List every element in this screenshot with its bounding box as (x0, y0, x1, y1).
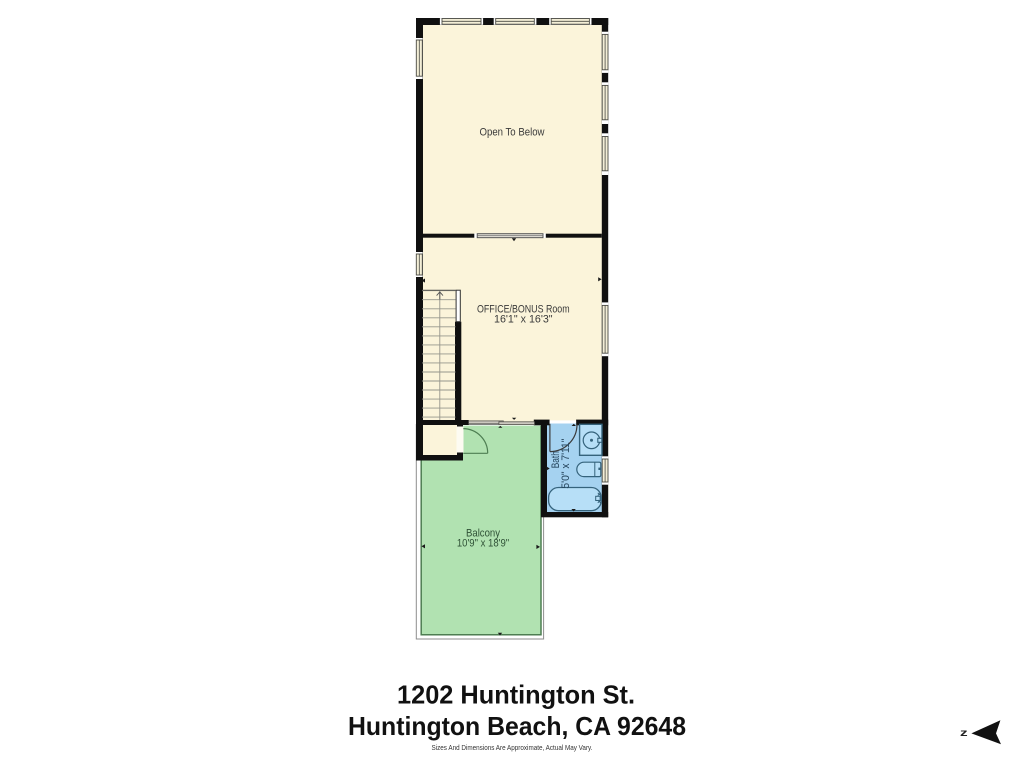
svg-text:z: z (960, 728, 968, 739)
svg-text:Sizes And Dimensions Are Appro: Sizes And Dimensions Are Approximate, Ac… (432, 743, 593, 752)
svg-text:1202 Huntington St.: 1202 Huntington St. (397, 680, 635, 710)
svg-text:Open To Below: Open To Below (480, 127, 545, 139)
svg-text:10'9" x 18'9": 10'9" x 18'9" (457, 537, 509, 549)
svg-text:16'1" x 16'3": 16'1" x 16'3" (494, 314, 553, 326)
svg-text:Huntington Beach, CA 92648: Huntington Beach, CA 92648 (348, 711, 686, 741)
svg-text:5'0" x 7'11": 5'0" x 7'11" (560, 439, 572, 489)
